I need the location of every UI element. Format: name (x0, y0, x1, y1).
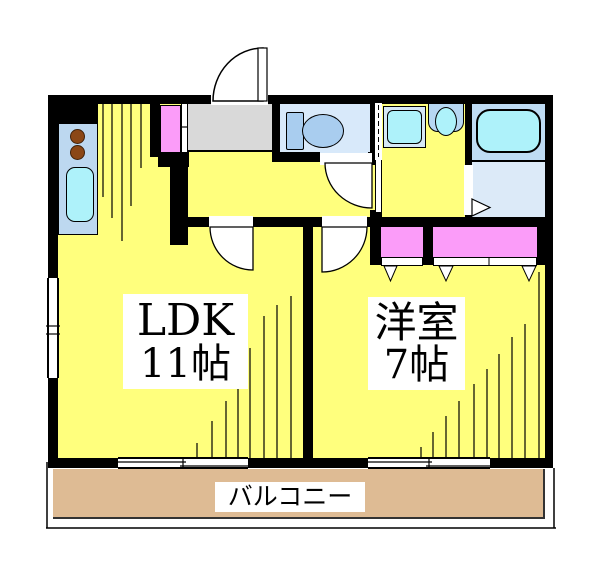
wall (170, 167, 188, 245)
window-western (368, 457, 490, 469)
genkan-sliding-door (181, 103, 188, 152)
wall (272, 152, 320, 162)
wall (253, 217, 322, 227)
wall (545, 95, 553, 468)
wall (423, 227, 433, 265)
wash-basin-icon (435, 107, 457, 136)
western-room-label: 洋室 7帖 (368, 297, 465, 390)
entrance-door-leaf (258, 48, 267, 101)
wall (150, 103, 160, 157)
bathtub-icon (476, 109, 541, 153)
wall (465, 103, 472, 165)
wall (248, 458, 368, 468)
ldk-door-opening (209, 216, 253, 228)
wall (272, 103, 280, 152)
toilet-door-opening (320, 153, 372, 165)
balcony-name: バルコニー (228, 484, 353, 510)
western-room-size: 7帖 (384, 345, 449, 387)
wall (48, 378, 58, 458)
wall (48, 458, 118, 468)
ldk-name: LDK (137, 298, 234, 344)
wall (490, 458, 553, 468)
wall (537, 227, 545, 265)
shoe-cabinet (160, 105, 181, 157)
floor-plan: LDK 11帖 洋室 7帖 バルコニー (0, 0, 600, 572)
washroom-door-lower (375, 160, 382, 212)
washroom-door-upper (375, 103, 382, 160)
wall (158, 152, 189, 167)
closet-2-door-strip (433, 257, 537, 266)
ldk-size: 11帖 (140, 344, 231, 386)
wall (183, 217, 209, 227)
entrance-door-opening (211, 95, 268, 105)
window-left (47, 278, 59, 378)
western-room-door-opening (322, 216, 367, 228)
entrance-door-arc (213, 48, 263, 101)
window-ldk (118, 457, 248, 469)
closet-1-door-strip (381, 257, 423, 266)
wall (370, 227, 381, 265)
wall (303, 227, 313, 458)
western-room-name: 洋室 (374, 301, 458, 345)
balcony-label: バルコニー (215, 482, 365, 512)
bathroom-floor (472, 160, 545, 217)
wall (268, 95, 553, 104)
genkan-entrance (188, 103, 272, 152)
wall (370, 217, 553, 227)
kitchen-sink-icon (66, 167, 94, 222)
stove-burner-icon (70, 145, 85, 160)
toilet-icon (302, 114, 344, 148)
stove-burner-icon (70, 129, 85, 144)
ldk-label: LDK 11帖 (123, 294, 248, 389)
bathroom-door-opening (464, 165, 473, 215)
washing-machine-pan-inner (387, 110, 422, 144)
closet-1 (381, 227, 423, 257)
wall (48, 103, 58, 278)
closet-2 (433, 227, 537, 257)
